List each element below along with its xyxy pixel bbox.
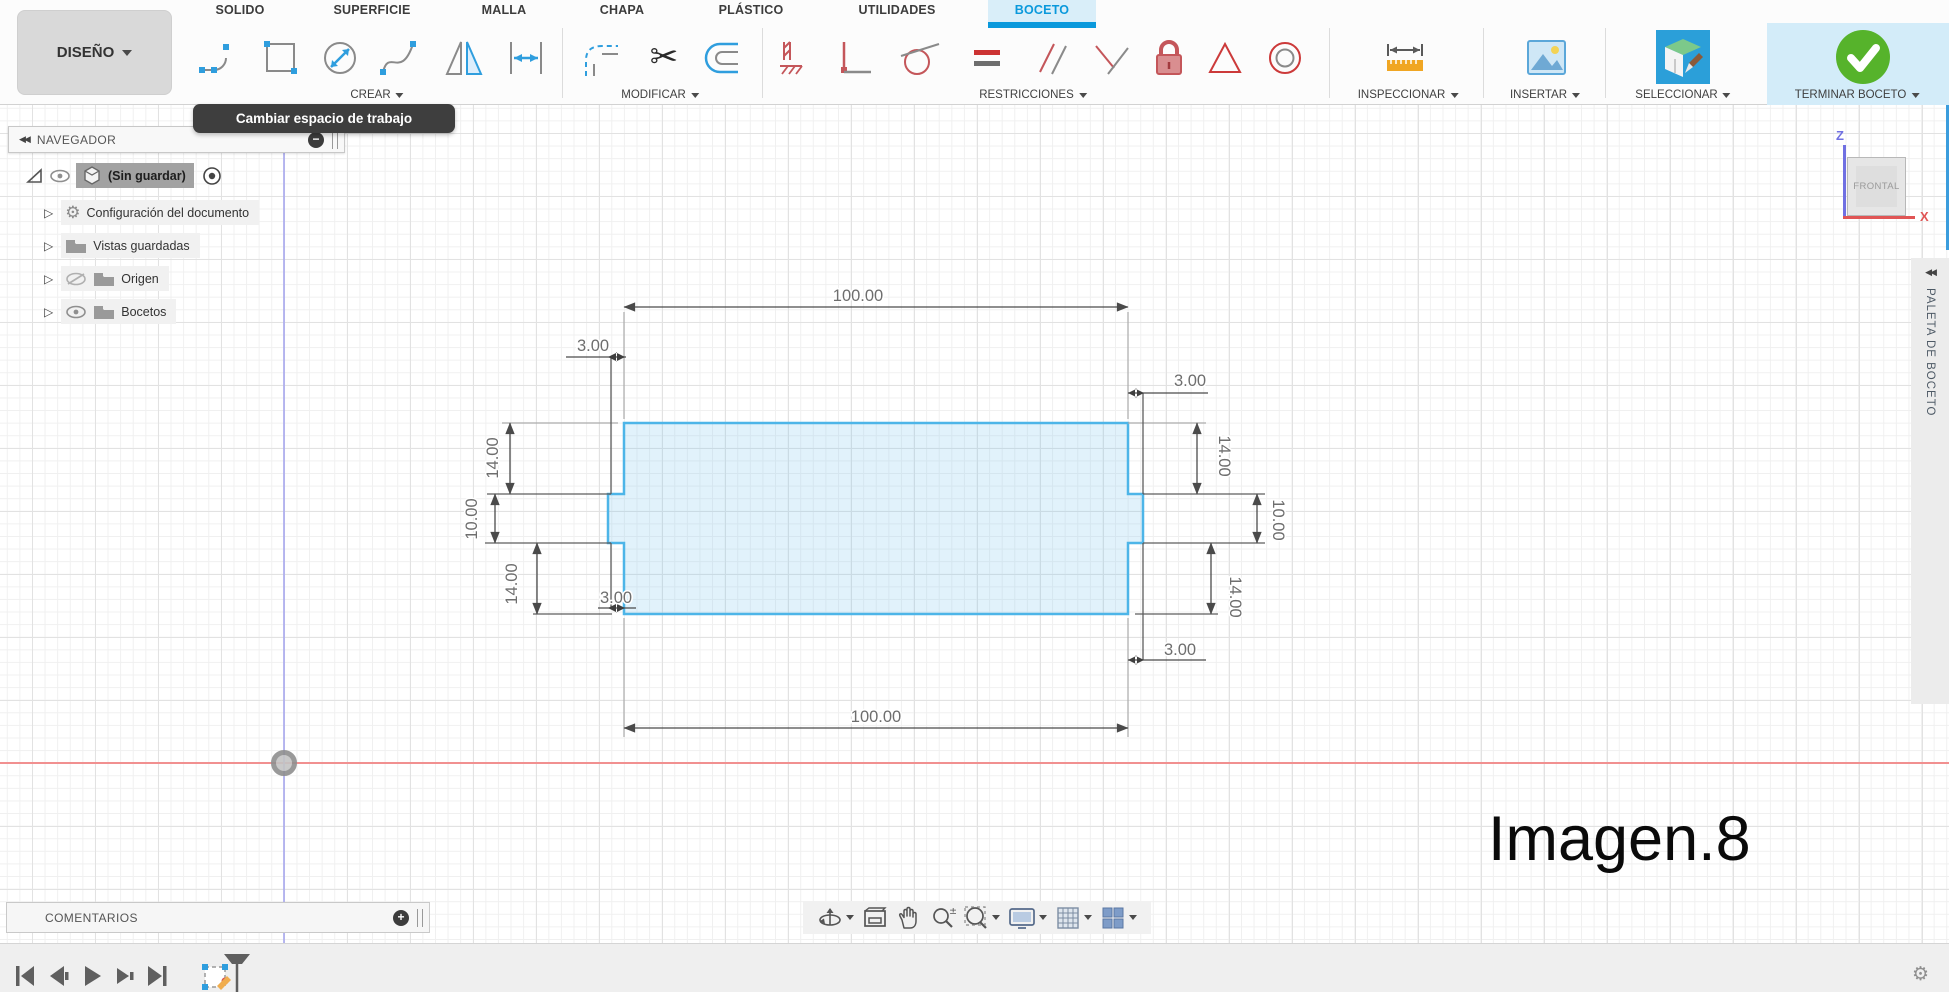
chevron-down-icon xyxy=(1911,93,1919,98)
chevron-down-icon xyxy=(691,93,699,98)
timeline-bar xyxy=(0,943,1949,992)
pan-hand-icon xyxy=(896,905,922,931)
dim-height-lower-right[interactable]: 14.00 xyxy=(1226,576,1244,617)
zoom-icon: ± xyxy=(930,905,956,931)
expand-closed-icon[interactable]: ▷ xyxy=(44,272,53,286)
display-monitor-icon xyxy=(1008,905,1036,931)
tree-item-label: Origen xyxy=(121,272,159,286)
timeline-step-forward-button[interactable] xyxy=(116,965,138,987)
group-label-seleccionar[interactable]: SELECCIONAR xyxy=(1635,89,1730,101)
chevron-down-icon xyxy=(1129,915,1137,920)
chevron-down-icon xyxy=(1039,915,1047,920)
toolbar-separator xyxy=(1329,28,1330,98)
collapse-panel-icon[interactable]: ◀◀ xyxy=(19,135,29,145)
constraint-perpendicular-icon[interactable] xyxy=(830,28,876,86)
comments-title: COMENTARIOS xyxy=(45,911,393,925)
tab-superficie[interactable]: SUPERFICIE xyxy=(333,3,410,17)
group-label-modificar[interactable]: MODIFICAR xyxy=(621,89,699,101)
dim-height-upper-right[interactable]: 14.00 xyxy=(1215,435,1233,476)
group-label-inspeccionar[interactable]: INSPECCIONAR xyxy=(1358,89,1459,101)
expand-closed-icon[interactable]: ▷ xyxy=(44,305,53,319)
timeline-play-button[interactable] xyxy=(84,965,104,987)
tree-row-saved-views[interactable]: ▷ Vistas guardadas xyxy=(44,233,200,258)
panel-drag-handle[interactable] xyxy=(417,909,423,927)
chevron-down-icon xyxy=(992,915,1000,920)
tree-item-label: Vistas guardadas xyxy=(93,239,189,253)
chevron-down-icon xyxy=(1450,93,1458,98)
rectangle-tool-icon[interactable] xyxy=(257,28,303,86)
viewports-icon xyxy=(1100,905,1126,931)
group-label-insertar[interactable]: INSERTAR xyxy=(1510,89,1580,101)
component-cube-icon xyxy=(80,165,102,187)
viewports[interactable] xyxy=(1100,905,1137,931)
constraint-equal-icon[interactable] xyxy=(964,28,1010,86)
visibility-eye-icon[interactable] xyxy=(65,304,87,320)
sketch-palette-collapsed[interactable]: ◀◀ PALETA DE BOCETO xyxy=(1911,258,1949,704)
workspace-switcher-label: DISEÑO xyxy=(57,44,115,61)
dim-offset-top-left[interactable]: 3.00 xyxy=(577,337,609,355)
arc-tool-icon[interactable] xyxy=(194,28,240,86)
constraint-lock-icon[interactable] xyxy=(1146,28,1192,86)
timeline-sketch-feature[interactable] xyxy=(200,948,256,992)
document-root-item[interactable]: (Sin guardar) xyxy=(76,163,194,188)
constraint-tangent-icon[interactable] xyxy=(895,28,941,86)
mirror-tool-icon[interactable] xyxy=(442,28,488,86)
viewcube-x-axis xyxy=(1843,216,1915,219)
visibility-eye-icon[interactable] xyxy=(50,169,70,183)
dim-offset-top-right[interactable]: 3.00 xyxy=(1174,372,1206,390)
panel-minimize-icon[interactable]: − xyxy=(308,132,324,148)
navigator-title: NAVEGADOR xyxy=(37,133,116,147)
gear-icon: ⚙ xyxy=(65,203,80,223)
group-label-terminar-boceto[interactable]: TERMINAR BOCETO xyxy=(1795,89,1920,101)
expand-panel-icon[interactable]: ◀◀ xyxy=(1925,268,1935,278)
trim-tool-icon[interactable]: ✂ xyxy=(641,28,687,86)
group-label-restricciones[interactable]: RESTRICCIONES xyxy=(979,89,1087,101)
chevron-down-icon xyxy=(122,50,132,56)
constraint-collinear-icon[interactable] xyxy=(1087,28,1133,86)
viewcube-x-label: X xyxy=(1920,209,1929,224)
tab-chapa[interactable]: CHAPA xyxy=(600,3,645,17)
tab-plastico[interactable]: PLÁSTICO xyxy=(719,3,784,17)
tab-solido[interactable]: SOLIDO xyxy=(215,3,264,17)
sketch-canvas[interactable]: 100.00 100.00 3.00 3.00 3.00 3.00 14.00 … xyxy=(0,105,1949,943)
dim-offset-bottom-left[interactable]: 3.00 xyxy=(600,589,632,607)
chevron-down-icon xyxy=(846,915,854,920)
sketch-palette-title: PALETA DE BOCETO xyxy=(1924,288,1936,416)
folder-icon xyxy=(93,271,115,287)
tab-malla[interactable]: MALLA xyxy=(482,3,527,17)
offset-tool-icon[interactable] xyxy=(699,28,745,86)
orbit-icon xyxy=(817,905,843,931)
main-toolbar: SOLIDO SUPERFICIE MALLA CHAPA PLÁSTICO U… xyxy=(0,0,1949,105)
add-comment-icon[interactable]: + xyxy=(393,910,409,926)
sketch-dimension-tool-icon[interactable] xyxy=(503,28,549,86)
tab-boceto[interactable]: BOCETO xyxy=(1015,3,1069,17)
activate-radio-icon[interactable] xyxy=(202,166,222,186)
fillet-tool-icon[interactable] xyxy=(577,28,623,86)
workspace-tooltip: Cambiar espacio de trabajo xyxy=(193,104,455,133)
constraint-triangle-icon[interactable] xyxy=(1202,28,1248,86)
chevron-down-icon xyxy=(396,93,404,98)
toolbar-separator xyxy=(562,28,563,98)
display-settings[interactable] xyxy=(1008,905,1047,931)
svg-text:±: ± xyxy=(949,906,956,917)
chevron-down-icon xyxy=(1572,93,1580,98)
constraint-fixed-icon[interactable] xyxy=(771,28,817,86)
toolbar-separator xyxy=(1605,28,1606,98)
zoom-window-icon xyxy=(963,905,989,931)
folder-icon xyxy=(93,304,115,320)
dim-notch-left[interactable]: 10.00 xyxy=(463,498,481,539)
dim-width-bottom[interactable]: 100.00 xyxy=(851,708,901,726)
orbit-tool[interactable] xyxy=(817,905,854,931)
spline-tool-icon[interactable] xyxy=(376,28,422,86)
timeline-step-back-button[interactable] xyxy=(48,965,70,987)
viewcube-front-face[interactable]: FRONTAL xyxy=(1847,157,1906,216)
tree-item-label: Configuración del documento xyxy=(86,206,249,220)
image-caption: Imagen.8 xyxy=(1488,803,1751,875)
chevron-down-icon xyxy=(1079,93,1087,98)
group-label-crear[interactable]: CREAR xyxy=(350,89,403,101)
dim-offset-bottom-right[interactable]: 3.00 xyxy=(1164,641,1196,659)
tree-row-sketches[interactable]: ▷ Bocetos xyxy=(44,299,176,324)
viewcube-z-label: Z xyxy=(1836,128,1844,143)
timeline-go-to-end-button[interactable] xyxy=(147,965,169,987)
zoom-tool[interactable]: ± xyxy=(930,905,956,931)
dim-height-lower-left[interactable]: 14.00 xyxy=(503,563,521,604)
workspace-switcher-button[interactable]: DISEÑO xyxy=(17,10,172,95)
timeline-go-to-start-button[interactable] xyxy=(16,965,36,987)
look-at-tool[interactable] xyxy=(862,905,888,931)
measure-tool-icon[interactable] xyxy=(1382,28,1428,86)
constraint-concentric-icon[interactable] xyxy=(1262,28,1308,86)
constraint-parallel-icon[interactable] xyxy=(1029,28,1075,86)
viewcube-z-axis xyxy=(1843,145,1846,217)
expand-closed-icon[interactable]: ▷ xyxy=(44,239,53,253)
folder-icon xyxy=(65,238,87,254)
dim-width-top[interactable]: 100.00 xyxy=(833,287,883,305)
view-navigation-bar: ± xyxy=(803,901,1151,934)
select-tool-icon[interactable] xyxy=(1655,28,1711,86)
tree-row-doc-settings[interactable]: ▷ ⚙ Configuración del documento xyxy=(44,200,259,225)
insert-image-icon[interactable] xyxy=(1523,28,1569,86)
dim-height-upper-left[interactable]: 14.00 xyxy=(484,437,502,478)
sketch-profile xyxy=(608,423,1143,614)
timeline-settings-gear-icon[interactable]: ⚙ xyxy=(1912,963,1929,985)
expand-closed-icon[interactable]: ▷ xyxy=(44,206,53,220)
panel-drag-handle[interactable] xyxy=(332,131,338,149)
expand-open-icon[interactable] xyxy=(26,168,44,184)
chevron-down-icon xyxy=(1723,93,1731,98)
pan-tool[interactable] xyxy=(896,905,922,931)
finish-sketch-button[interactable] xyxy=(1834,28,1892,86)
look-at-icon xyxy=(862,905,888,931)
grid-icon xyxy=(1055,905,1081,931)
comments-panel-header[interactable]: COMENTARIOS + xyxy=(6,902,430,933)
toolbar-separator xyxy=(762,28,763,98)
visibility-off-icon[interactable] xyxy=(65,271,87,287)
tab-utilidades[interactable]: UTILIDADES xyxy=(859,3,936,17)
circle-tool-icon[interactable] xyxy=(317,28,363,86)
toolbar-separator xyxy=(1483,28,1484,98)
tree-item-label: Bocetos xyxy=(121,305,166,319)
tree-row-origin[interactable]: ▷ Origen xyxy=(44,266,169,291)
document-root-label: (Sin guardar) xyxy=(108,169,186,183)
view-cube[interactable]: FRONTAL Z X xyxy=(1820,120,1940,235)
viewcube-face-label: FRONTAL xyxy=(1853,181,1899,192)
tree-row-root[interactable]: (Sin guardar) xyxy=(26,163,228,188)
grid-settings[interactable] xyxy=(1055,905,1092,931)
dim-notch-right[interactable]: 10.00 xyxy=(1269,499,1287,540)
fit-tool[interactable] xyxy=(963,905,1000,931)
chevron-down-icon xyxy=(1084,915,1092,920)
